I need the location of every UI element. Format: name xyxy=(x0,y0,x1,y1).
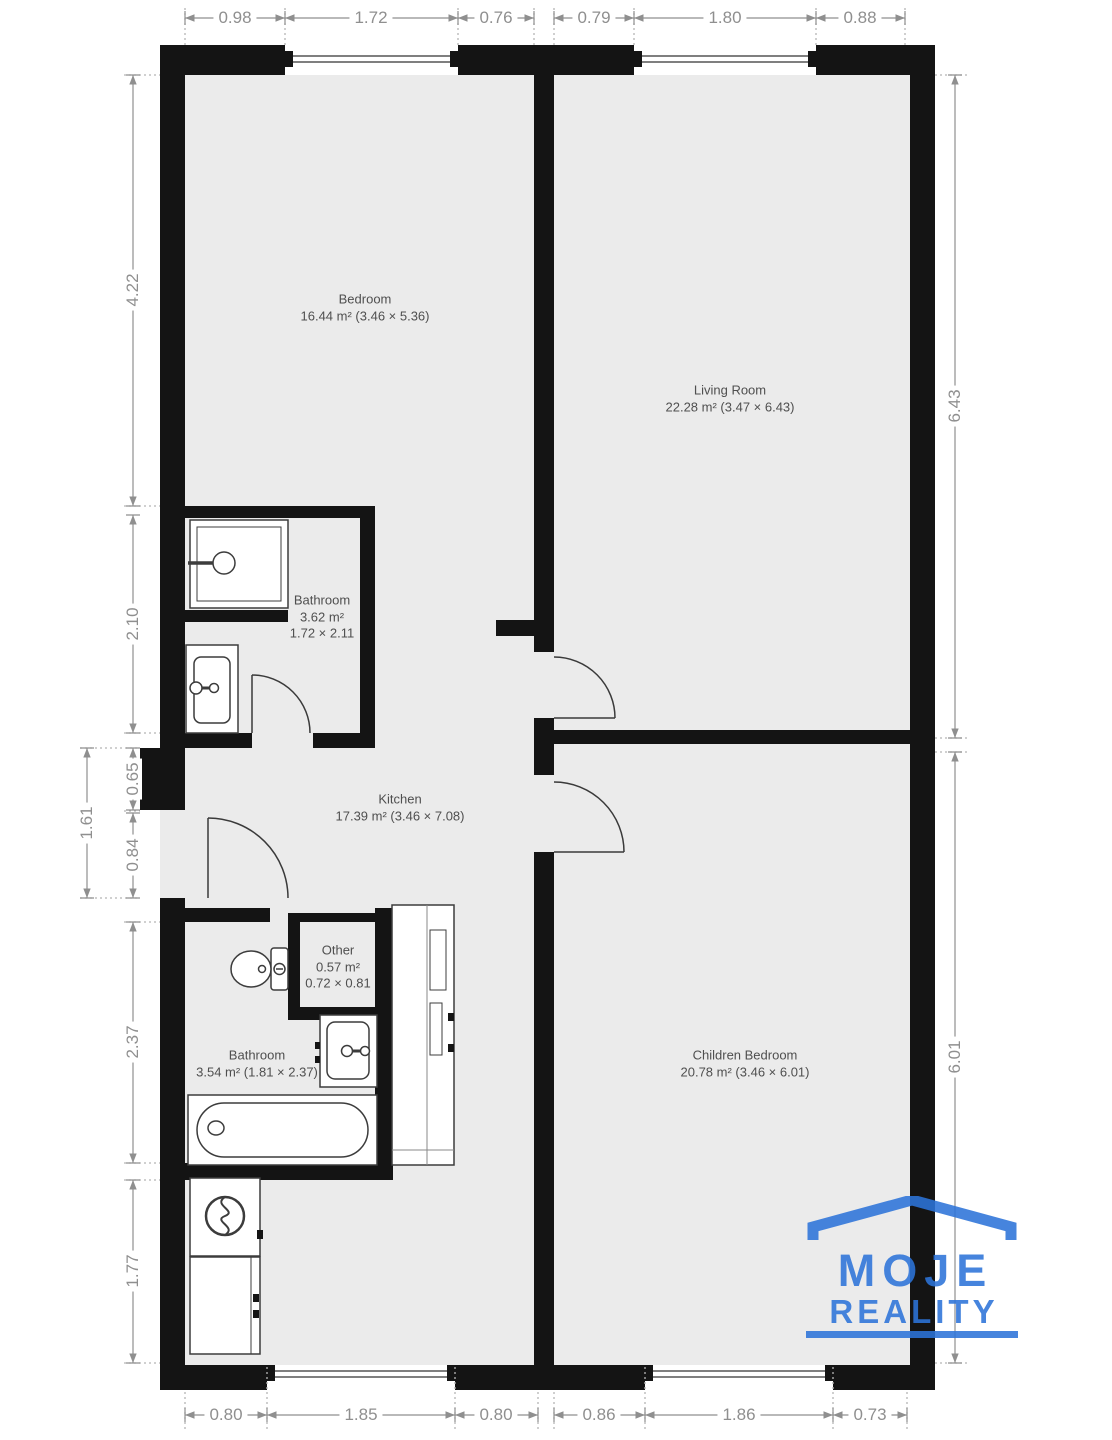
room-area: 22.28 m² (3.47 × 6.43) xyxy=(666,399,795,416)
toilet xyxy=(231,948,288,990)
room-area: 17.39 m² (3.46 × 7.08) xyxy=(336,808,465,825)
roof-icon xyxy=(806,1196,1018,1242)
floor-plan-page: Bedroom 16.44 m² (3.46 × 5.36) Living Ro… xyxy=(0,0,1112,1440)
dimension-label: 2.37 xyxy=(124,1021,142,1062)
laundry-cabinet xyxy=(190,1257,260,1354)
dimension-label: 0.98 xyxy=(213,9,256,27)
bathtub xyxy=(188,1095,377,1165)
logo-text-reality: REALITY xyxy=(810,1294,1018,1329)
room-name: Living Room xyxy=(666,383,795,400)
window-living-room xyxy=(634,45,816,75)
room-label-children-bedroom: Children Bedroom 20.78 m² (3.46 × 6.01) xyxy=(681,1048,810,1081)
room-label-kitchen: Kitchen 17.39 m² (3.46 × 7.08) xyxy=(336,792,465,825)
dimension-label: 0.80 xyxy=(204,1406,247,1424)
brand-logo: MOJE REALITY xyxy=(806,1196,1018,1338)
dimension-label: 2.10 xyxy=(124,603,142,644)
dimension-label: 0.84 xyxy=(124,834,142,875)
room-area: 20.78 m² (3.46 × 6.01) xyxy=(681,1064,810,1081)
room-name: Children Bedroom xyxy=(681,1048,810,1065)
room-area: 16.44 m² (3.46 × 5.36) xyxy=(301,308,430,325)
dimension-label: 1.85 xyxy=(339,1406,382,1424)
dimension-label: 0.80 xyxy=(474,1406,517,1424)
bathroom-sink-upper xyxy=(186,645,238,733)
logo-underline xyxy=(806,1331,1018,1338)
dimension-label: 0.73 xyxy=(848,1406,891,1424)
dimension-label: 1.72 xyxy=(349,9,392,27)
dimension-label: 6.01 xyxy=(946,1036,964,1077)
dimension-label: 6.43 xyxy=(946,385,964,426)
room-label-bedroom: Bedroom 16.44 m² (3.46 × 5.36) xyxy=(301,292,430,325)
dimension-label: 0.86 xyxy=(577,1406,620,1424)
dimension-label: 1.80 xyxy=(703,9,746,27)
room-label-living-room: Living Room 22.28 m² (3.47 × 6.43) xyxy=(666,383,795,416)
bathroom-sink-lower xyxy=(315,1015,377,1087)
room-name: Bedroom xyxy=(301,292,430,309)
room-name: Other xyxy=(305,942,370,959)
shower-unit xyxy=(188,520,288,608)
room-area: 3.54 m² (1.81 × 2.37) xyxy=(196,1064,318,1081)
room-name: Bathroom xyxy=(290,592,354,609)
room-area: 0.57 m² xyxy=(305,959,370,976)
dimension-label: 1.86 xyxy=(717,1406,760,1424)
dimension-label: 0.79 xyxy=(572,9,615,27)
dimension-label: 0.76 xyxy=(474,9,517,27)
room-name: Kitchen xyxy=(336,792,465,809)
room-area: 3.62 m² xyxy=(290,609,354,626)
kitchen-counter xyxy=(392,905,454,1165)
room-label-bathroom-upper: Bathroom 3.62 m² 1.72 × 2.11 xyxy=(290,592,354,642)
room-size: 0.72 × 0.81 xyxy=(305,975,370,992)
dimension-label: 0.65 xyxy=(124,758,142,799)
window-children-bedroom xyxy=(645,1365,833,1390)
room-label-other: Other 0.57 m² 0.72 × 0.81 xyxy=(305,942,370,992)
room-size: 1.72 × 2.11 xyxy=(290,625,354,642)
dimension-label: 4.22 xyxy=(124,269,142,310)
dimension-label: 0.88 xyxy=(838,9,881,27)
room-label-bathroom-lower: Bathroom 3.54 m² (1.81 × 2.37) xyxy=(196,1048,318,1081)
dimension-label: 1.61 xyxy=(78,802,96,843)
room-name: Bathroom xyxy=(196,1048,318,1065)
window-bedroom xyxy=(285,45,458,75)
washing-machine xyxy=(190,1178,263,1256)
logo-text-moje: MOJE xyxy=(813,1248,1018,1294)
dimension-label: 1.77 xyxy=(124,1250,142,1291)
window-kitchen xyxy=(267,1365,455,1390)
